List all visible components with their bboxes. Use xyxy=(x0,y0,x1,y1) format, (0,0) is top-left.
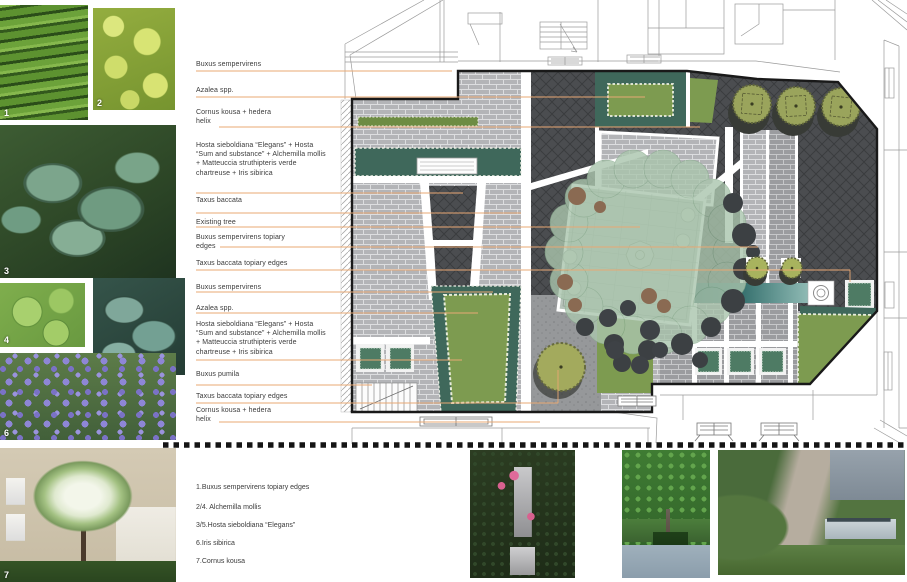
label-buxus-sempervirens-2: Buxus sempervirens xyxy=(196,283,330,292)
photo-alchemilla-leaves: 4 xyxy=(0,283,85,347)
photo-number: 6 xyxy=(4,428,9,438)
photo-pleached-tree-courtyard xyxy=(622,450,710,578)
presentation-board: { "plant_labels": [ {"text": "Buxus semp… xyxy=(0,0,907,582)
legend-item-5: 7.Cornus kousa xyxy=(196,557,314,566)
legend-item-1: 1.Buxus sempervirens topiary edges xyxy=(196,483,314,492)
stair-symbol xyxy=(540,22,587,49)
label-cornus-hedera: Cornus kousa + hedera helix xyxy=(196,108,286,126)
buxus-hedge-strip xyxy=(358,117,478,126)
label-buxus-pumila: Buxus pumila xyxy=(196,370,330,379)
label-buxus-sempervirens: Buxus sempervirens xyxy=(196,60,330,69)
label-taxus-topiary-edges: Taxus baccata topiary edges xyxy=(196,259,330,268)
legend-item-3: 3/5.Hosta sieboldiana “Elegans” xyxy=(196,521,314,530)
legend-item-4: 6.Iris sibirica xyxy=(196,539,314,548)
plan-zones xyxy=(348,70,878,416)
label-taxus-topiary-edges-2: Taxus baccata topiary edges xyxy=(196,392,330,401)
label-taxus-baccata: Taxus baccata xyxy=(196,196,330,205)
lawn-bottom-left xyxy=(444,294,510,403)
photo-hosta-elegans: 3 xyxy=(0,125,176,278)
existing-wall-hatch xyxy=(341,100,352,412)
label-hosta-mix-2: Hosta sieboldiana “Elegans” + Hosta “Sum… xyxy=(196,320,330,357)
photo-number: 1 xyxy=(4,108,9,118)
stairs-bottom xyxy=(356,383,417,412)
label-hosta-mix: Hosta sieboldiana “Elegans” + Hosta “Sum… xyxy=(196,141,330,178)
photo-alchemilla-flowers: 2 xyxy=(93,8,175,110)
label-azalea-2: Azalea spp. xyxy=(196,304,330,313)
photo-number: 2 xyxy=(97,98,102,108)
photo-cornus-kousa: 7 xyxy=(0,448,176,582)
photo-number: 4 xyxy=(4,335,9,345)
label-existing-tree: Existing tree xyxy=(196,218,330,227)
legend-item-2: 2/4. Alchemilla mollis xyxy=(196,503,314,512)
fountain xyxy=(814,286,829,301)
label-cornus-hedera-2: Cornus kousa + hedera helix xyxy=(196,406,286,424)
photo-iris-sibirica: 6 xyxy=(0,353,176,440)
topiary-square xyxy=(390,348,411,369)
clipped-trees-top xyxy=(728,85,860,137)
lawn-top xyxy=(608,84,673,116)
photo-statue-hedge xyxy=(470,450,575,578)
path-vertical xyxy=(521,70,531,415)
topiary-square xyxy=(360,348,381,369)
photo-number: 3 xyxy=(4,266,9,276)
label-buxus-topiary-edges: Buxus sempervirens topiary edges xyxy=(196,233,300,251)
photo-garden-water-trough xyxy=(718,450,905,575)
path-horizontal xyxy=(352,176,531,183)
label-azalea: Azalea spp. xyxy=(196,86,330,95)
photo-buxus-hedges: 1 xyxy=(0,5,88,120)
photo-number: 7 xyxy=(4,570,9,580)
